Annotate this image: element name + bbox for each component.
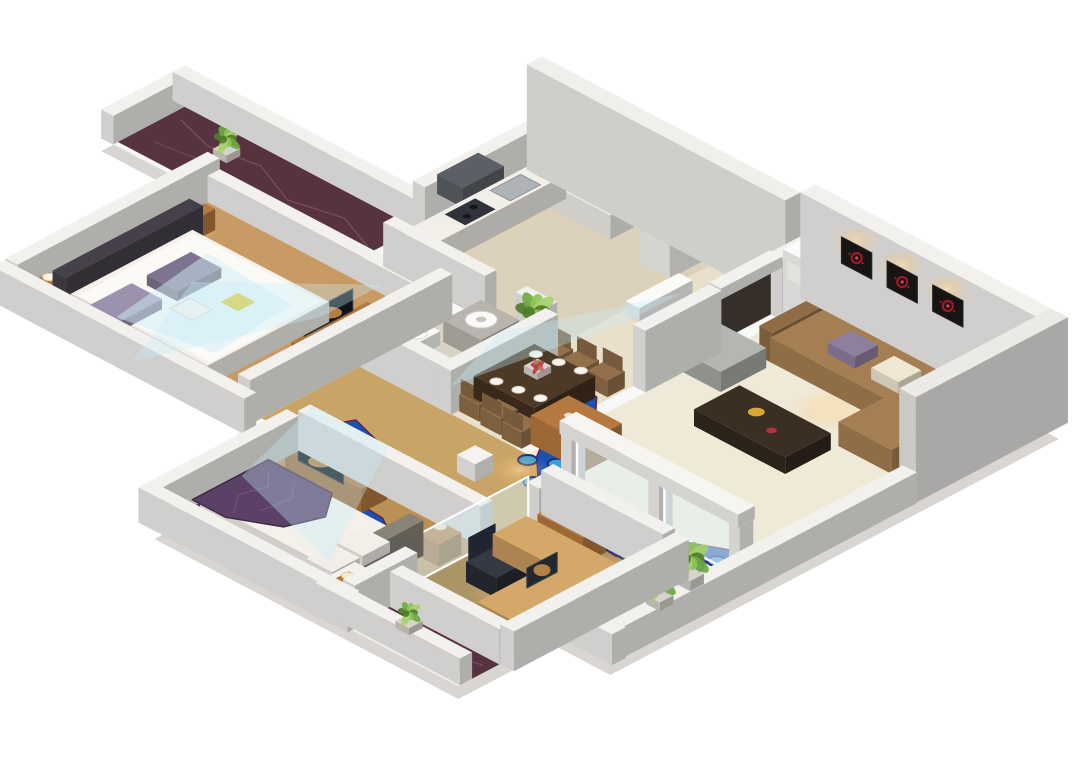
apartment-3d-floor-plan (0, 0, 1080, 764)
coffee-table-decor (766, 428, 777, 434)
floor-plan-stage (0, 0, 1080, 764)
coffee-table-bowl (748, 408, 765, 417)
bathroom-sink-drain (476, 317, 487, 323)
